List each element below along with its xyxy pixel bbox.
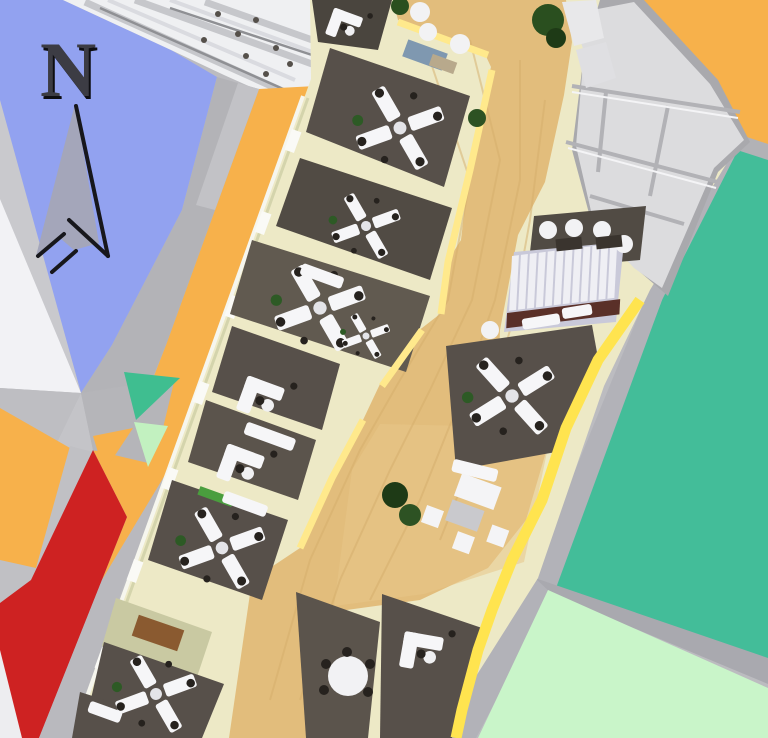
svg-text:N: N [40, 26, 96, 113]
